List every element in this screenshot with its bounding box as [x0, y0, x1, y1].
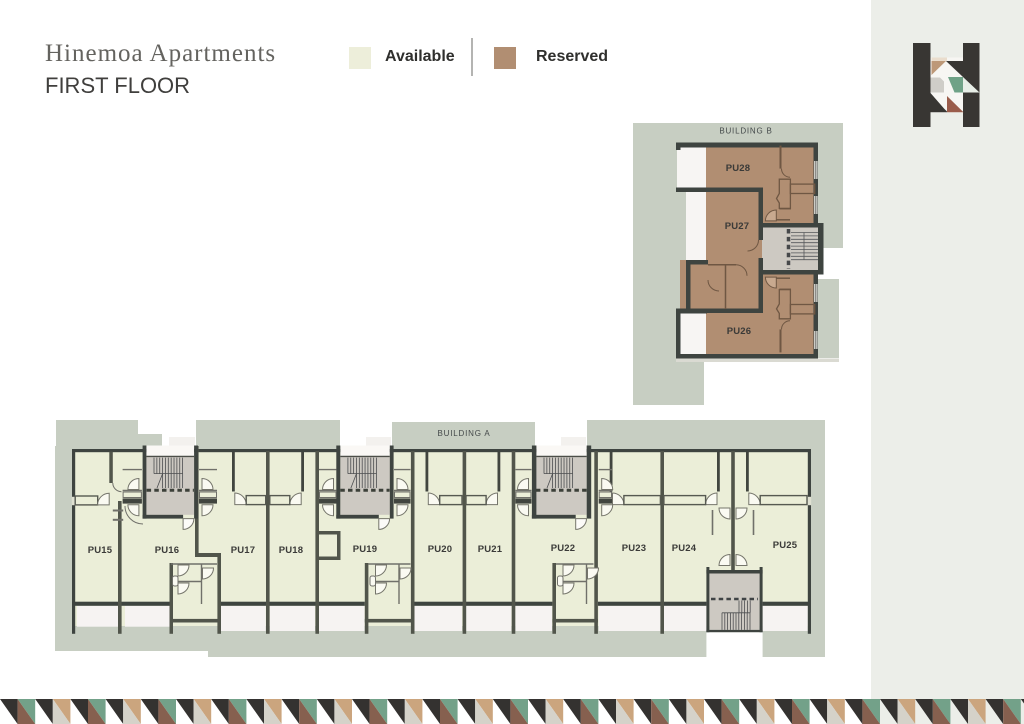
svg-text:PU18: PU18: [279, 545, 304, 556]
svg-text:PU20: PU20: [428, 544, 453, 555]
svg-text:PU28: PU28: [726, 163, 751, 174]
svg-text:PU25: PU25: [773, 540, 798, 551]
svg-text:PU26: PU26: [727, 326, 752, 337]
svg-text:PU23: PU23: [622, 543, 647, 554]
svg-text:PU22: PU22: [551, 543, 576, 554]
svg-text:PU17: PU17: [231, 545, 256, 556]
svg-text:BUILDING B: BUILDING B: [719, 127, 772, 136]
svg-text:PU15: PU15: [88, 545, 113, 556]
svg-text:PU19: PU19: [353, 544, 378, 555]
svg-text:PU27: PU27: [725, 221, 750, 232]
svg-text:PU16: PU16: [155, 545, 180, 556]
svg-text:PU21: PU21: [478, 544, 503, 555]
svg-text:BUILDING A: BUILDING A: [438, 429, 491, 438]
svg-text:PU24: PU24: [672, 543, 697, 554]
